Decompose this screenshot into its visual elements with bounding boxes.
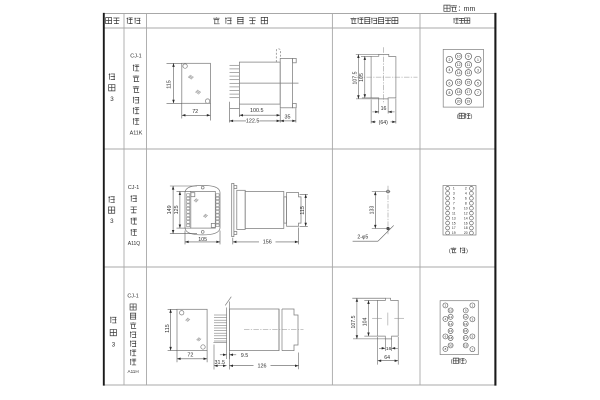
svg-text:115: 115 xyxy=(165,324,171,333)
svg-text:2-φ5: 2-φ5 xyxy=(357,234,368,240)
svg-text:17: 17 xyxy=(464,336,468,340)
svg-text:9: 9 xyxy=(467,55,469,59)
svg-text:133: 133 xyxy=(369,206,375,215)
svg-text:(: ( xyxy=(451,359,453,365)
svg-text:16: 16 xyxy=(386,346,392,352)
svg-text:11: 11 xyxy=(464,315,467,319)
svg-text:9: 9 xyxy=(453,206,455,210)
svg-text:3: 3 xyxy=(477,68,479,72)
svg-text:122.5: 122.5 xyxy=(246,119,260,125)
svg-text:1: 1 xyxy=(477,58,479,62)
svg-text:20: 20 xyxy=(464,231,468,235)
svg-text:12: 12 xyxy=(464,211,468,215)
svg-text:2: 2 xyxy=(465,187,467,191)
svg-text:2: 2 xyxy=(448,58,450,62)
svg-text:16: 16 xyxy=(457,81,461,85)
svg-text:105: 105 xyxy=(359,73,365,82)
svg-text:13: 13 xyxy=(452,216,456,220)
svg-text:mm: mm xyxy=(464,6,476,13)
svg-text:6: 6 xyxy=(465,197,467,201)
svg-text:CJ-1: CJ-1 xyxy=(128,185,139,191)
svg-text:10: 10 xyxy=(457,55,461,59)
svg-text:5: 5 xyxy=(453,197,455,201)
svg-text:13: 13 xyxy=(467,71,471,75)
svg-text:18: 18 xyxy=(457,90,461,94)
svg-text:115: 115 xyxy=(166,80,172,89)
svg-text:4: 4 xyxy=(448,68,450,72)
svg-text:14: 14 xyxy=(449,322,453,326)
svg-text:6: 6 xyxy=(448,81,450,85)
svg-text:107.5: 107.5 xyxy=(351,315,357,328)
svg-text:10: 10 xyxy=(449,309,453,313)
svg-text:15: 15 xyxy=(452,221,456,225)
svg-text:72: 72 xyxy=(187,353,193,359)
svg-text:): ) xyxy=(466,248,468,254)
svg-text:19: 19 xyxy=(464,344,468,348)
svg-text:156: 156 xyxy=(263,240,272,246)
svg-text:3: 3 xyxy=(110,96,114,103)
svg-text:(: ( xyxy=(457,114,459,120)
svg-text:CJ-1: CJ-1 xyxy=(130,54,141,60)
svg-text:7: 7 xyxy=(453,201,455,205)
svg-text:): ) xyxy=(471,114,473,120)
svg-text:126: 126 xyxy=(258,364,267,370)
svg-text:13: 13 xyxy=(464,322,468,326)
svg-text:105: 105 xyxy=(198,237,207,243)
svg-text:8: 8 xyxy=(465,201,467,205)
svg-text:19: 19 xyxy=(467,100,471,104)
svg-text:11: 11 xyxy=(452,211,456,215)
svg-text:): ) xyxy=(465,359,467,365)
svg-text:17: 17 xyxy=(452,226,456,230)
svg-text:14: 14 xyxy=(457,71,461,75)
svg-text:64: 64 xyxy=(384,355,390,361)
svg-text:100.5: 100.5 xyxy=(250,108,264,114)
svg-text:115: 115 xyxy=(300,206,306,215)
svg-text:15: 15 xyxy=(464,329,468,333)
svg-text:3: 3 xyxy=(112,341,116,348)
svg-text:1: 1 xyxy=(453,187,455,191)
svg-text:4: 4 xyxy=(465,192,467,196)
svg-text:20: 20 xyxy=(457,100,461,104)
svg-text:12: 12 xyxy=(457,63,461,67)
svg-text:17: 17 xyxy=(467,90,471,94)
svg-text:18: 18 xyxy=(464,226,468,230)
svg-text:A11H: A11H xyxy=(128,369,139,374)
svg-text:14: 14 xyxy=(464,216,468,220)
svg-text:9.5: 9.5 xyxy=(241,353,249,359)
svg-text:CJ-1: CJ-1 xyxy=(127,293,138,299)
svg-text:18: 18 xyxy=(449,336,453,340)
svg-text:3: 3 xyxy=(110,218,114,225)
svg-text:3: 3 xyxy=(453,192,455,196)
svg-text:A11K: A11K xyxy=(130,131,143,137)
svg-text:16: 16 xyxy=(381,106,387,112)
svg-text:125: 125 xyxy=(174,205,180,214)
svg-text:149: 149 xyxy=(167,205,173,214)
svg-text:72: 72 xyxy=(192,109,198,115)
svg-text:104: 104 xyxy=(363,317,369,326)
svg-text:7: 7 xyxy=(477,91,479,95)
svg-text:8: 8 xyxy=(448,91,450,95)
svg-text:15: 15 xyxy=(467,81,471,85)
svg-text:19: 19 xyxy=(452,231,456,235)
svg-text:10: 10 xyxy=(464,206,468,210)
svg-text:11: 11 xyxy=(467,63,471,67)
svg-text:(: ( xyxy=(449,248,451,254)
svg-text:(64): (64) xyxy=(379,120,388,126)
svg-text:16: 16 xyxy=(464,221,468,225)
svg-text:12: 12 xyxy=(449,315,453,319)
svg-text:16: 16 xyxy=(449,329,453,333)
svg-text:31.5: 31.5 xyxy=(215,360,226,366)
svg-text:20: 20 xyxy=(449,344,453,348)
svg-text:5: 5 xyxy=(477,81,479,85)
svg-text:35: 35 xyxy=(285,115,291,121)
svg-text:107.5: 107.5 xyxy=(352,71,358,84)
svg-text:A11Q: A11Q xyxy=(128,241,141,247)
